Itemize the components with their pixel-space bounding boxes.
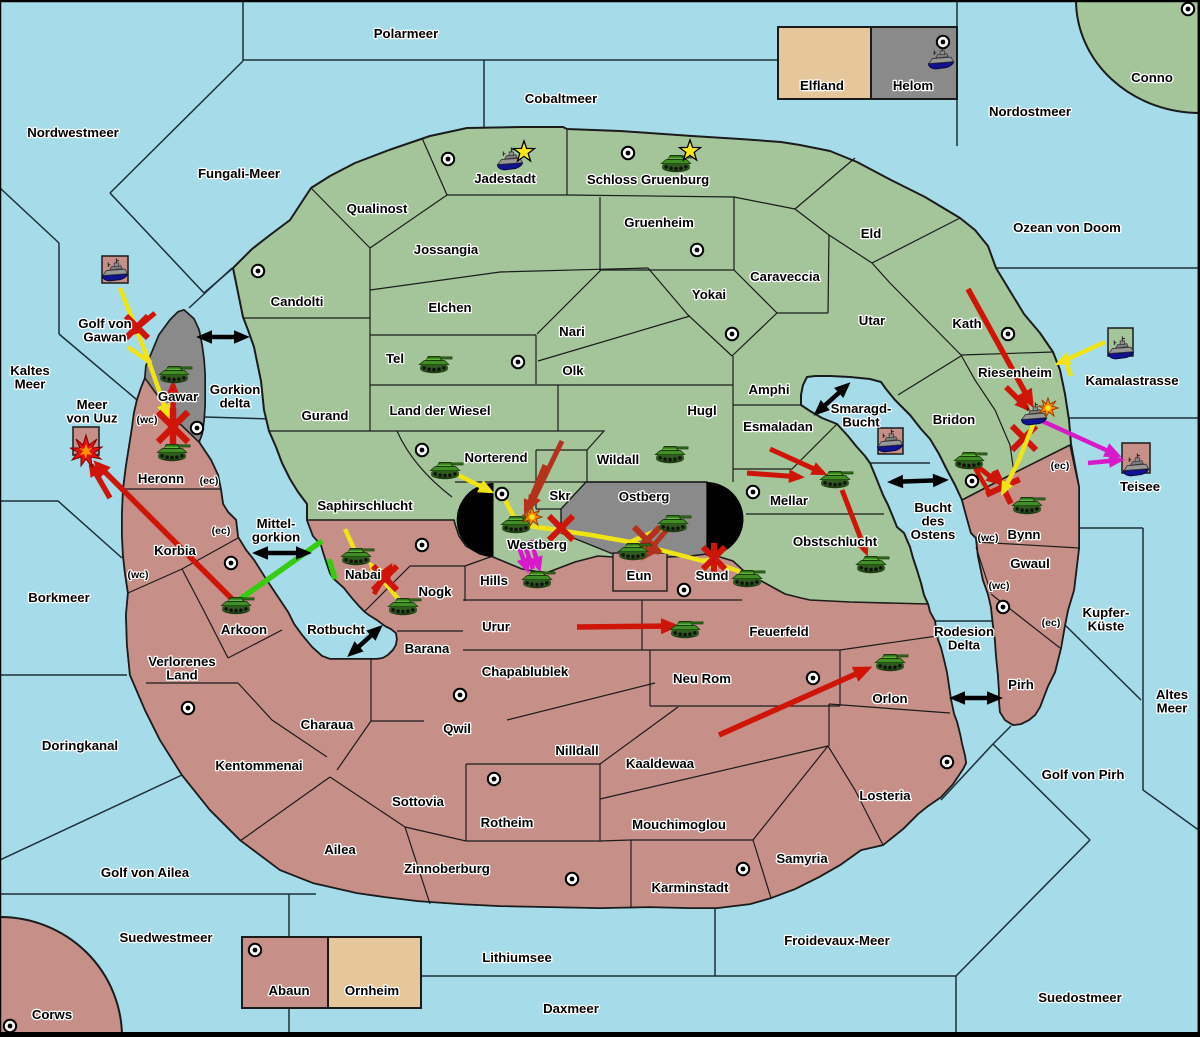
svg-text:Nabai: Nabai xyxy=(345,567,381,582)
svg-text:Losteria: Losteria xyxy=(859,788,911,803)
svg-text:Chapablublek: Chapablublek xyxy=(482,664,569,679)
svg-text:Suedwestmeer: Suedwestmeer xyxy=(119,930,212,945)
svg-text:Corws: Corws xyxy=(32,1007,72,1022)
svg-text:(ec): (ec) xyxy=(1042,617,1061,629)
svg-text:Zinnoberburg: Zinnoberburg xyxy=(404,861,490,876)
svg-text:Gruenheim: Gruenheim xyxy=(624,215,694,230)
svg-text:Golf von Pirh: Golf von Pirh xyxy=(1042,767,1125,782)
svg-text:Mouchimoglou: Mouchimoglou xyxy=(632,817,726,832)
svg-text:Ailea: Ailea xyxy=(324,842,356,857)
svg-text:Elfland: Elfland xyxy=(800,78,844,93)
svg-text:Saphirschlucht: Saphirschlucht xyxy=(317,498,413,513)
svg-text:Gwaul: Gwaul xyxy=(1010,556,1050,571)
svg-text:Heronn: Heronn xyxy=(138,471,184,486)
svg-text:Olk: Olk xyxy=(562,363,584,378)
svg-text:Doringkanal: Doringkanal xyxy=(42,738,118,753)
svg-text:Qwil: Qwil xyxy=(443,721,471,736)
svg-text:Froidevaux-Meer: Froidevaux-Meer xyxy=(784,933,890,948)
svg-text:Kath: Kath xyxy=(952,316,981,331)
svg-text:Conno: Conno xyxy=(1131,70,1173,85)
svg-text:Karminstadt: Karminstadt xyxy=(652,880,730,895)
svg-text:(wc): (wc) xyxy=(989,580,1010,592)
svg-text:Kamalastrasse: Kamalastrasse xyxy=(1085,373,1178,388)
svg-text:Borkmeer: Borkmeer xyxy=(28,590,90,605)
svg-text:(wc): (wc) xyxy=(978,532,999,544)
svg-text:Teisee: Teisee xyxy=(1120,479,1160,494)
svg-text:Nari: Nari xyxy=(559,324,585,339)
svg-text:Samyria: Samyria xyxy=(776,851,828,866)
svg-text:Pirh: Pirh xyxy=(1008,677,1034,692)
svg-text:Rotbucht: Rotbucht xyxy=(307,622,365,637)
svg-text:Nilldall: Nilldall xyxy=(555,743,598,758)
svg-text:Hills: Hills xyxy=(480,573,508,588)
svg-text:Tel: Tel xyxy=(386,351,404,366)
svg-text:(wc): (wc) xyxy=(137,414,158,426)
svg-text:Urur: Urur xyxy=(482,619,510,634)
svg-text:Candolti: Candolti xyxy=(271,294,324,309)
svg-text:Kentommenai: Kentommenai xyxy=(215,758,302,773)
svg-text:Mellar: Mellar xyxy=(770,493,808,508)
svg-text:Sund: Sund xyxy=(696,568,729,583)
svg-text:Charaua: Charaua xyxy=(301,717,354,732)
svg-text:Eun: Eun xyxy=(627,568,652,583)
svg-text:Jossangia: Jossangia xyxy=(414,242,479,257)
svg-text:Riesenheim: Riesenheim xyxy=(978,365,1052,380)
svg-text:Ozean von Doom: Ozean von Doom xyxy=(1013,220,1121,235)
svg-text:Abaun: Abaun xyxy=(268,983,309,998)
svg-text:Nordostmeer: Nordostmeer xyxy=(989,104,1071,119)
svg-text:Utar: Utar xyxy=(859,313,885,328)
svg-text:Hugl: Hugl xyxy=(687,403,716,418)
svg-text:Gawar: Gawar xyxy=(158,389,198,404)
svg-text:Qualinost: Qualinost xyxy=(347,201,408,216)
svg-text:Lithiumsee: Lithiumsee xyxy=(482,950,552,965)
svg-text:(wc): (wc) xyxy=(128,569,149,581)
svg-text:Golf vonGawan: Golf vonGawan xyxy=(78,316,131,345)
svg-text:Ostberg: Ostberg xyxy=(619,489,670,504)
svg-text:Daxmeer: Daxmeer xyxy=(543,1001,599,1016)
svg-text:Eld: Eld xyxy=(861,226,882,241)
svg-text:Bynn: Bynn xyxy=(1008,527,1041,542)
svg-text:Skr: Skr xyxy=(549,488,570,503)
svg-text:Arkoon: Arkoon xyxy=(221,622,267,637)
svg-text:AltesMeer: AltesMeer xyxy=(1156,687,1188,716)
svg-text:(ec): (ec) xyxy=(1051,460,1070,472)
svg-text:Yokai: Yokai xyxy=(692,287,726,302)
svg-text:Land der Wiesel: Land der Wiesel xyxy=(389,403,490,418)
svg-text:Westberg: Westberg xyxy=(507,537,567,552)
svg-text:(ec): (ec) xyxy=(212,525,231,537)
svg-text:Bridon: Bridon xyxy=(933,412,976,427)
svg-text:Nogk: Nogk xyxy=(419,584,453,599)
svg-text:Feuerfeld: Feuerfeld xyxy=(749,624,808,639)
svg-text:KaltesMeer: KaltesMeer xyxy=(10,363,50,392)
svg-text:Jadestadt: Jadestadt xyxy=(474,171,536,186)
svg-text:Fungali-Meer: Fungali-Meer xyxy=(198,166,280,181)
svg-text:Sottovia: Sottovia xyxy=(392,794,445,809)
svg-text:Golf von Ailea: Golf von Ailea xyxy=(101,865,190,880)
svg-text:Nordwestmeer: Nordwestmeer xyxy=(27,125,119,140)
svg-text:(ec): (ec) xyxy=(200,475,219,487)
svg-text:Obstschlucht: Obstschlucht xyxy=(793,534,878,549)
svg-text:Rotheim: Rotheim xyxy=(481,815,534,830)
svg-text:Orlon: Orlon xyxy=(872,691,907,706)
svg-text:Amphi: Amphi xyxy=(748,382,789,397)
svg-text:Ornheim: Ornheim xyxy=(345,983,399,998)
svg-text:Suedostmeer: Suedostmeer xyxy=(1038,990,1122,1005)
svg-text:Elchen: Elchen xyxy=(428,300,471,315)
svg-text:Neu Rom: Neu Rom xyxy=(673,671,731,686)
svg-text:Kupfer-Küste: Kupfer-Küste xyxy=(1083,605,1130,634)
svg-text:Norterend: Norterend xyxy=(464,450,527,465)
svg-text:Caraveccia: Caraveccia xyxy=(750,269,820,284)
svg-text:Kaaldewaa: Kaaldewaa xyxy=(626,756,695,771)
svg-text:Wildall: Wildall xyxy=(597,452,639,467)
svg-text:Barana: Barana xyxy=(405,641,450,656)
svg-text:Helom: Helom xyxy=(893,78,933,93)
svg-text:Korbia: Korbia xyxy=(154,543,196,558)
svg-text:Polarmeer: Polarmeer xyxy=(374,26,439,41)
svg-text:Gurand: Gurand xyxy=(302,408,349,423)
svg-text:Esmaladan: Esmaladan xyxy=(743,419,813,434)
svg-text:Cobaltmeer: Cobaltmeer xyxy=(525,91,598,106)
svg-text:Schloss Gruenburg: Schloss Gruenburg xyxy=(587,172,709,187)
svg-text:Mittel-gorkion: Mittel-gorkion xyxy=(252,516,300,545)
